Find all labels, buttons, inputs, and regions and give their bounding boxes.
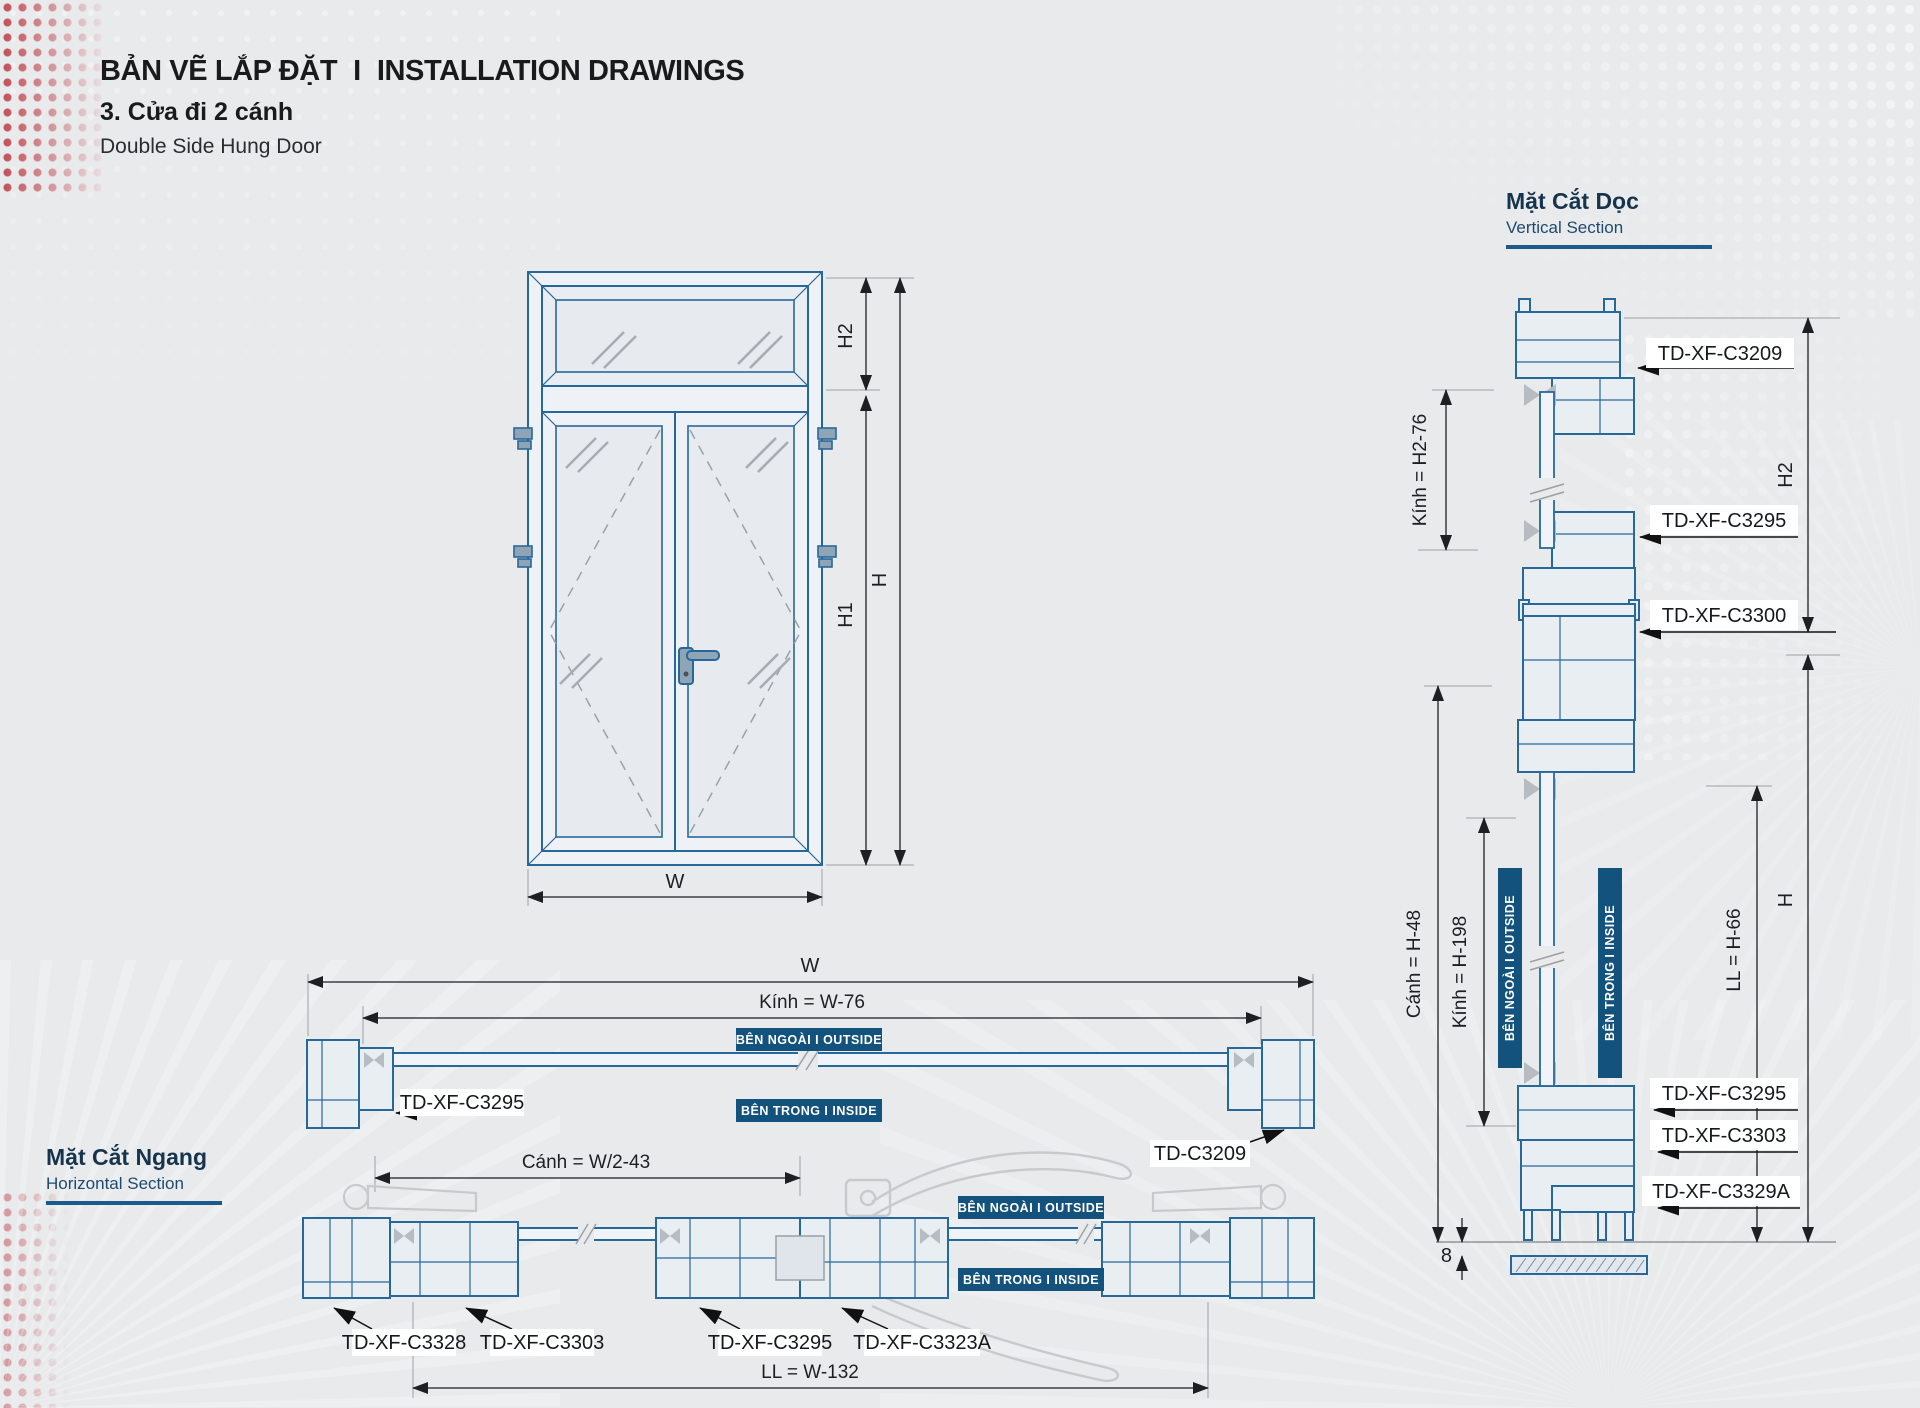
profile-c3300-connector — [1523, 604, 1635, 616]
part-label-td-xf-c3295-frame: TD-XF-C3295 — [400, 1092, 524, 1114]
page-title-en: INSTALLATION DRAWINGS — [377, 55, 745, 87]
profile-threshold-c3329a — [1552, 1186, 1634, 1212]
vertical-section-underline — [1506, 245, 1712, 249]
ghost-hinges — [344, 1185, 1285, 1211]
part-label-td-xf-c3328: TD-XF-C3328 — [342, 1332, 466, 1354]
page-title: BẢN VẼ LẮP ĐẶTIINSTALLATION DRAWINGS — [100, 55, 744, 88]
part-label-td-xf-c3303-horizontal: TD-XF-C3303 — [480, 1332, 604, 1354]
horizontal-section-title-vi: Mặt Cắt Ngang — [46, 1144, 222, 1171]
dim-floor-gap-8: 8 — [1441, 1245, 1452, 1267]
horizontal-section-title-en: Horizontal Section — [46, 1174, 222, 1194]
vertical-section-title-vi: Mặt Cắt Dọc — [1506, 188, 1712, 215]
transom-rail — [542, 386, 808, 412]
door-leaf-right — [675, 412, 808, 851]
installation-drawing-page: { "header": { "title_vi": "BẢN VẼ LẮP ĐẶ… — [0, 0, 1920, 1408]
vertical-section-badges: BÊN NGOÀI I OUTSIDE BÊN TRONG I INSIDE — [1498, 868, 1622, 1078]
part-label-td-xf-c3300: TD-XF-C3300 — [1662, 605, 1786, 627]
dim-kinh-w-76: Kính = W-76 — [759, 992, 865, 1013]
transom-window — [542, 286, 808, 386]
page-subtitle-en: Double Side Hung Door — [100, 135, 744, 159]
horizontal-section-underline — [46, 1201, 222, 1205]
vertical-section-title-en: Vertical Section — [1506, 218, 1712, 238]
profile-frame-left-plan — [303, 1218, 390, 1298]
elevation-dim-h1: H1 — [835, 602, 857, 628]
badge-inside-bottom: BÊN TRONG I INSIDE — [963, 1272, 1099, 1287]
part-label-td-xf-c3329a: TD-XF-C3329A — [1652, 1181, 1790, 1203]
profile-head-frame — [1516, 312, 1620, 378]
profile-frame-transom — [1523, 568, 1635, 604]
elevation-drawing: H2 H1 H W — [514, 272, 914, 906]
horizontal-frame-row: BÊN NGOÀI I OUTSIDE BÊN TRONG I INSIDE T… — [307, 955, 1314, 1196]
vertical-section-drawing: BÊN NGOÀI I OUTSIDE BÊN TRONG I INSIDE T… — [1404, 299, 1840, 1280]
page-subtitle-vi: 3. Cửa đi 2 cánh — [100, 98, 744, 127]
page-title-vi: BẢN VẼ LẮP ĐẶT — [100, 55, 337, 87]
vertical-profile-stack — [1516, 299, 1639, 1240]
badge-inside-vertical: BÊN TRONG I INSIDE — [1602, 905, 1617, 1041]
profile-transom-leaf-top — [1552, 378, 1634, 434]
horizontal-leaf-row: BÊN NGOÀI I OUTSIDE BÊN TRONG I INSIDE T… — [303, 1153, 1314, 1398]
floor-finish-bar — [1511, 1256, 1647, 1274]
dim-h-vertical: H — [1775, 893, 1797, 907]
dim-canh-w2-43: Cánh = W/2-43 — [522, 1152, 650, 1173]
dim-canh-h-48: Cánh = H-48 — [1404, 910, 1425, 1018]
part-label-td-xf-c3295-top: TD-XF-C3295 — [1662, 510, 1786, 532]
part-label-td-xf-c3303-vertical: TD-XF-C3303 — [1662, 1125, 1786, 1147]
door-leaf-left — [542, 412, 675, 851]
flush-bolt-insert — [776, 1236, 824, 1280]
part-label-td-c3209: TD-C3209 — [1154, 1143, 1246, 1165]
part-label-td-xf-c3323a: TD-XF-C3323A — [853, 1332, 991, 1354]
profile-jamb-right — [1262, 1040, 1314, 1128]
profile-leaf-top — [1518, 720, 1634, 772]
profile-frame-lower — [1523, 616, 1635, 720]
profile-leaf-bottom — [1518, 1086, 1634, 1140]
dim-ll-w-132: LL = W-132 — [761, 1362, 859, 1383]
badge-outside-vertical: BÊN NGOÀI I OUTSIDE — [1502, 895, 1517, 1041]
elevation-dim-h: H — [869, 573, 891, 587]
dim-kinh-h2-76: Kính = H2-76 — [1410, 414, 1431, 527]
badge-inside-top: BÊN TRONG I INSIDE — [741, 1103, 877, 1118]
dim-w-horizontal: W — [801, 955, 820, 977]
profile-jamb-left — [307, 1040, 359, 1128]
elevation-dim-h2: H2 — [835, 323, 857, 349]
profile-transom-leaf-bottom — [1552, 512, 1634, 568]
elevation-dim-w: W — [666, 871, 685, 893]
profile-frame-right-plan — [1230, 1218, 1314, 1298]
title-block: BẢN VẼ LẮP ĐẶTIINSTALLATION DRAWINGS 3. … — [100, 55, 744, 159]
part-label-td-xf-c3209: TD-XF-C3209 — [1658, 343, 1782, 365]
horizontal-section-heading: Mặt Cắt Ngang Horizontal Section — [46, 1144, 222, 1205]
part-label-td-xf-c3295-bottom: TD-XF-C3295 — [1662, 1083, 1786, 1105]
dim-h2-vertical: H2 — [1775, 462, 1797, 488]
profile-leaf-right-plan — [1102, 1222, 1230, 1296]
title-separator: I — [353, 55, 361, 88]
dim-kinh-h-198: Kính = H-198 — [1450, 916, 1471, 1029]
vertical-section-heading: Mặt Cắt Dọc Vertical Section — [1506, 188, 1712, 249]
badge-outside-top: BÊN NGOÀI I OUTSIDE — [736, 1032, 882, 1047]
horizontal-section-drawing: BÊN NGOÀI I OUTSIDE BÊN TRONG I INSIDE T… — [303, 955, 1314, 1398]
dim-ll-h-66: LL = H-66 — [1724, 908, 1745, 991]
part-label-td-xf-c3295-leaf: TD-XF-C3295 — [708, 1332, 832, 1354]
badge-outside-bottom: BÊN NGOÀI I OUTSIDE — [958, 1200, 1104, 1215]
